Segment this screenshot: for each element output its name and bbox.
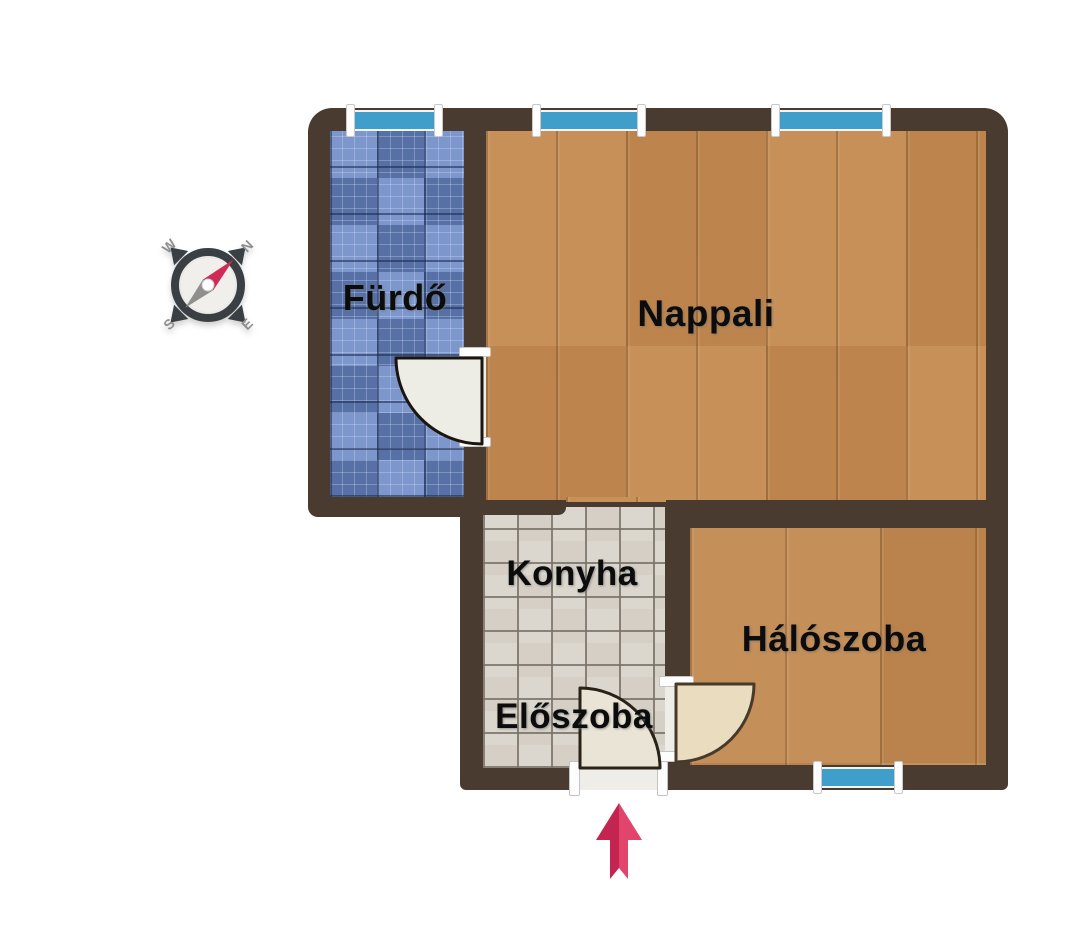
- window-cap: [637, 104, 646, 137]
- window-bathroom-icon: [353, 110, 435, 131]
- window-living-right-icon: [779, 110, 883, 131]
- room-label-bedroom: Hálószoba: [742, 618, 927, 660]
- compass-letter-e: E: [238, 315, 256, 333]
- window-cap: [813, 761, 822, 794]
- entrance-arrow-icon: [593, 803, 645, 879]
- window-cap: [434, 104, 443, 137]
- window-bedroom-icon: [820, 767, 895, 788]
- room-label-hallway: Előszoba: [495, 697, 653, 737]
- window-cap: [346, 104, 355, 137]
- room-label-kitchen: Konyha: [506, 554, 637, 594]
- window-living-left-icon: [540, 110, 638, 131]
- room-label-living-room: Nappali: [637, 293, 774, 335]
- wall-kitchen-partition: [460, 500, 566, 515]
- door-swing-bathroom-icon: [378, 352, 488, 448]
- passage-threshold-line: [566, 502, 666, 507]
- window-cap: [894, 761, 903, 794]
- floorplan-canvas: Fürdő Nappali Konyha Előszoba Hálószoba …: [0, 0, 1080, 940]
- window-cap: [532, 104, 541, 137]
- window-cap: [771, 104, 780, 137]
- door-swing-bedroom-icon: [670, 678, 760, 770]
- room-label-bathroom: Fürdő: [343, 277, 447, 319]
- window-cap: [882, 104, 891, 137]
- compass-rose-icon: N E S W: [150, 227, 266, 343]
